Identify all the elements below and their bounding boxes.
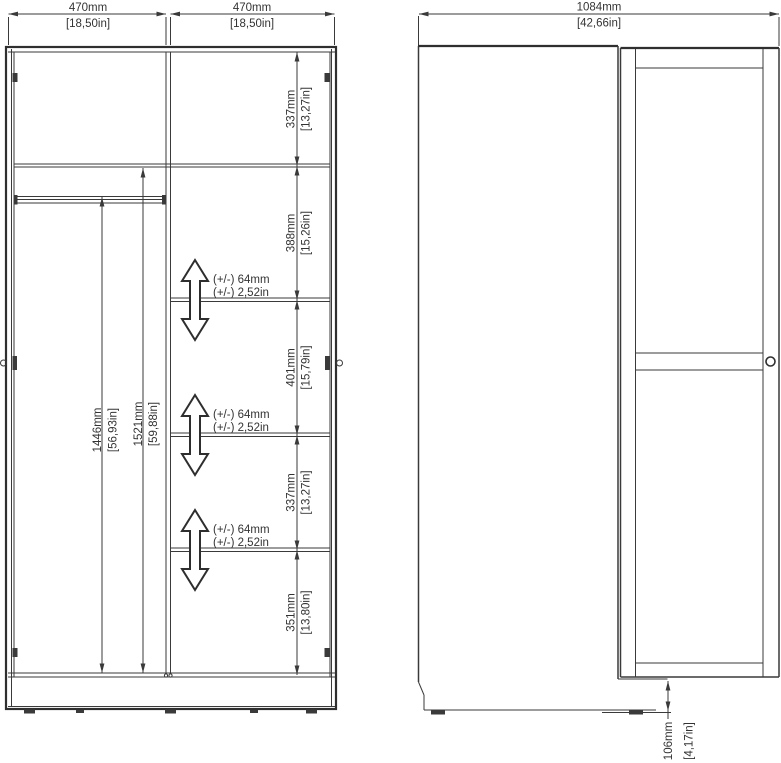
dim-hanging-in: [56,93in] (108, 408, 120, 452)
dim-seg1-in: [13,27in] (301, 87, 313, 131)
side-view-structure (418, 16, 779, 715)
shelf-adjust-3-mm: (+/-) 64mm (213, 524, 270, 536)
shelf-adjust-3: (+/-) 64mm (+/-) 2,52in (182, 510, 270, 590)
top-shelf (14, 164, 330, 167)
dim-hanging-mm: 1446mm (92, 408, 104, 453)
dim-clearance-in: [4,17in] (684, 722, 696, 760)
technical-drawing-svg: 470mm [18,50in] 470mm [18,50in] 337mm [1… (0, 0, 781, 763)
dim-seg2-in: [15,26in] (301, 211, 313, 255)
dim-depth-in: [42,66in] (577, 18, 621, 30)
dim-seg2-mm: 388mm (286, 214, 298, 252)
dim-seg4-in: [13,27in] (301, 470, 313, 514)
shelf-adjust-2-mm: (+/-) 64mm (213, 409, 270, 421)
shelf-adjust-1-in: (+/-) 2,52in (213, 287, 269, 299)
double-arrow-icon (182, 395, 208, 475)
dim-seg1-mm: 337mm (286, 90, 298, 128)
front-view-dimensions: 470mm [18,50in] 470mm [18,50in] 337mm [1… (9, 2, 335, 675)
right-door-knob-icon (337, 360, 343, 366)
interior-height-dimension: 1521mm [59,88in] (133, 168, 160, 673)
open-door-panel (621, 48, 780, 677)
shelf-adjust-1-mm: (+/-) 64mm (213, 274, 270, 286)
shelf-adjust-3-in: (+/-) 2,52in (213, 537, 269, 549)
side-door-knob-icon (766, 357, 775, 366)
right-knob-plate (325, 356, 330, 370)
dim-interior-mm: 1521mm (133, 402, 145, 447)
side-view-dimensions: 1084mm [42,66in] 106mm [4,17in] (419, 2, 779, 761)
height-segment-chain: 337mm [13,27in] 388mm [15,26in] 401mm [1… (286, 52, 313, 675)
dim-door-width-left-in: [18,50in] (66, 18, 110, 30)
dim-seg3-mm: 401mm (286, 348, 298, 386)
shelf-adjust-2: (+/-) 64mm (+/-) 2,52in (182, 395, 270, 475)
dim-door-width-right-mm: 470mm (233, 2, 271, 14)
floor-clearance-dimension: 106mm [4,17in] (602, 681, 696, 760)
shelf-adjust-1: (+/-) 64mm (+/-) 2,52in (182, 260, 270, 340)
wardrobe-dimension-drawing: 470mm [18,50in] 470mm [18,50in] 337mm [1… (0, 0, 781, 763)
dim-seg5-mm: 351mm (286, 593, 298, 631)
shelf-adjust-2-in: (+/-) 2,52in (213, 422, 269, 434)
left-knob-plate (13, 356, 18, 370)
double-arrow-icon (182, 510, 208, 590)
dim-seg3-in: [15,79in] (301, 345, 313, 389)
dim-depth-mm: 1084mm (577, 2, 622, 14)
dim-door-width-left-mm: 470mm (69, 2, 107, 14)
double-arrow-icon (182, 260, 208, 340)
dim-interior-in: [59,88in] (148, 402, 160, 446)
hanging-space-dimension: 1446mm [56,93in] (92, 197, 120, 673)
dim-door-width-right-in: [18,50in] (230, 18, 274, 30)
dim-seg5-in: [13,80in] (301, 590, 313, 634)
dim-clearance-mm: 106mm (663, 722, 675, 760)
dim-seg4-mm: 337mm (286, 473, 298, 511)
